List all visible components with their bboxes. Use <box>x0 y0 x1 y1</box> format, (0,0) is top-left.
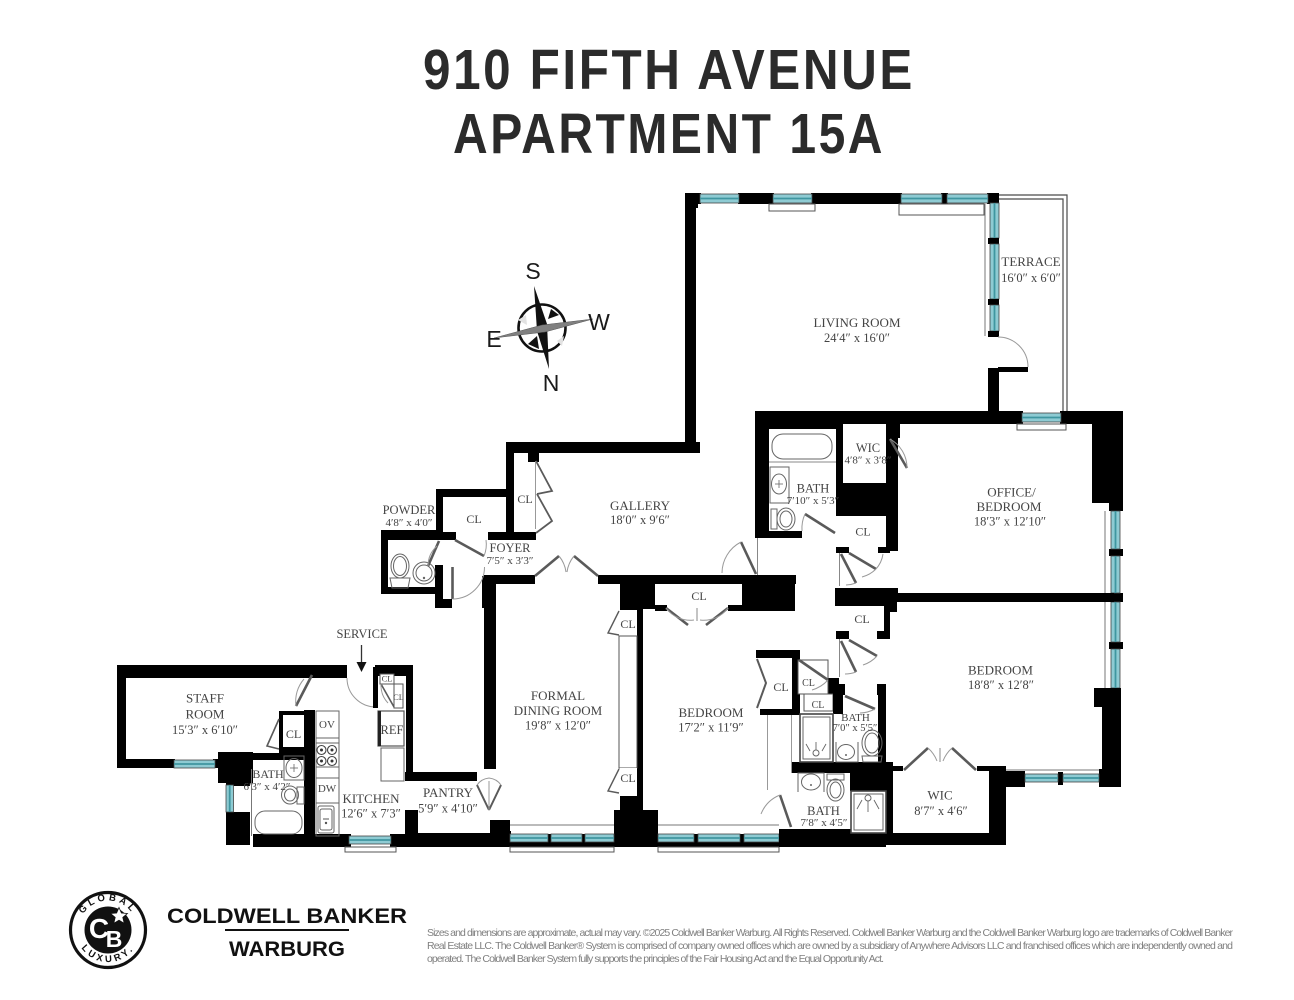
svg-text:18′8″ x 12′8″: 18′8″ x 12′8″ <box>968 678 1034 692</box>
svg-text:ROOM: ROOM <box>185 707 224 722</box>
svg-text:12′6″ x 7′3″: 12′6″ x 7′3″ <box>341 807 401 821</box>
svg-text:STAFF: STAFF <box>186 691 224 706</box>
svg-text:CL: CL <box>620 617 635 631</box>
svg-text:S: S <box>525 258 540 284</box>
svg-text:GALLERY: GALLERY <box>610 498 671 513</box>
svg-text:TERRACE: TERRACE <box>1001 254 1060 269</box>
svg-text:7′0″ x 5′5″: 7′0″ x 5′5″ <box>833 723 878 734</box>
svg-text:CL: CL <box>286 727 301 741</box>
svg-text:COLDWELL BANKER: COLDWELL BANKER <box>167 904 408 928</box>
svg-text:LIVING ROOM: LIVING ROOM <box>813 315 900 330</box>
svg-text:6′3″ x 4′2″: 6′3″ x 4′2″ <box>244 781 291 793</box>
svg-text:18′3″ x 12′10″: 18′3″ x 12′10″ <box>974 515 1046 529</box>
svg-text:7′8″ x 4′5″: 7′8″ x 4′5″ <box>801 817 848 829</box>
svg-text:WARBURG: WARBURG <box>229 938 345 961</box>
svg-text:CL: CL <box>517 492 532 506</box>
svg-text:CL: CL <box>382 674 393 684</box>
svg-text:BEDROOM: BEDROOM <box>968 663 1033 678</box>
svg-text:4′8″ x 4′0″: 4′8″ x 4′0″ <box>386 517 433 529</box>
svg-text:CL: CL <box>802 678 815 689</box>
svg-text:operated. The Coldwell Banker: operated. The Coldwell Banker System ful… <box>427 953 884 965</box>
svg-text:OV: OV <box>319 719 335 731</box>
svg-text:17′2″ x 11′9″: 17′2″ x 11′9″ <box>678 721 743 735</box>
svg-text:DW: DW <box>318 783 337 795</box>
svg-text:DINING ROOM: DINING ROOM <box>514 703 603 718</box>
svg-text:8′7″ x 4′6″: 8′7″ x 4′6″ <box>914 804 967 818</box>
svg-text:KITCHEN: KITCHEN <box>342 791 400 806</box>
svg-text:CL: CL <box>855 525 870 539</box>
svg-text:BATH: BATH <box>807 804 840 818</box>
svg-text:CL: CL <box>854 612 869 626</box>
svg-text:7′5″ x 3′3″: 7′5″ x 3′3″ <box>487 555 534 567</box>
svg-text:FOYER: FOYER <box>490 541 532 555</box>
svg-text:W: W <box>588 309 610 335</box>
svg-text:APARTMENT 15A: APARTMENT 15A <box>453 102 885 166</box>
svg-text:16′0″ x 6′0″: 16′0″ x 6′0″ <box>1001 271 1061 285</box>
svg-text:WIC: WIC <box>927 788 952 803</box>
svg-text:Sizes and dimensions are appro: Sizes and dimensions are approximate, ac… <box>427 927 1234 939</box>
svg-text:5′9″ x 4′10″: 5′9″ x 4′10″ <box>418 802 478 816</box>
svg-text:Real Estate LLC. The Coldwell: Real Estate LLC. The Coldwell Banker® Sy… <box>427 940 1233 952</box>
svg-text:OFFICE/: OFFICE/ <box>987 485 1036 500</box>
svg-text:B: B <box>106 926 123 952</box>
svg-text:BEDROOM: BEDROOM <box>976 499 1041 514</box>
svg-text:N: N <box>543 370 560 396</box>
svg-text:BATH: BATH <box>797 482 830 496</box>
svg-text:SERVICE: SERVICE <box>336 627 387 641</box>
svg-text:WIC: WIC <box>856 441 880 455</box>
svg-text:PANTRY: PANTRY <box>423 785 474 800</box>
svg-text:CL: CL <box>691 589 706 603</box>
svg-text:CL: CL <box>773 680 788 694</box>
svg-text:CL: CL <box>466 512 481 526</box>
svg-text:CL: CL <box>393 692 404 702</box>
svg-text:18′0″ x 9′6″: 18′0″ x 9′6″ <box>610 513 670 527</box>
svg-text:E: E <box>486 326 501 352</box>
svg-text:POWDER: POWDER <box>383 503 436 517</box>
svg-text:CL: CL <box>620 771 635 785</box>
svg-text:REF: REF <box>381 723 404 737</box>
svg-text:4′8″ x 3′8″: 4′8″ x 3′8″ <box>845 455 892 467</box>
svg-text:19′8″ x 12′0″: 19′8″ x 12′0″ <box>525 719 591 733</box>
svg-text:15′3″ x 6′10″: 15′3″ x 6′10″ <box>172 723 238 737</box>
svg-text:FORMAL: FORMAL <box>531 688 585 703</box>
svg-text:24′4″ x 16′0″: 24′4″ x 16′0″ <box>824 331 890 345</box>
svg-text:7′10″ x 5′3″: 7′10″ x 5′3″ <box>787 495 839 507</box>
svg-text:BEDROOM: BEDROOM <box>678 705 743 720</box>
svg-text:910 FIFTH AVENUE: 910 FIFTH AVENUE <box>423 38 915 102</box>
svg-text:BATH: BATH <box>252 767 284 781</box>
svg-text:CL: CL <box>812 700 825 711</box>
